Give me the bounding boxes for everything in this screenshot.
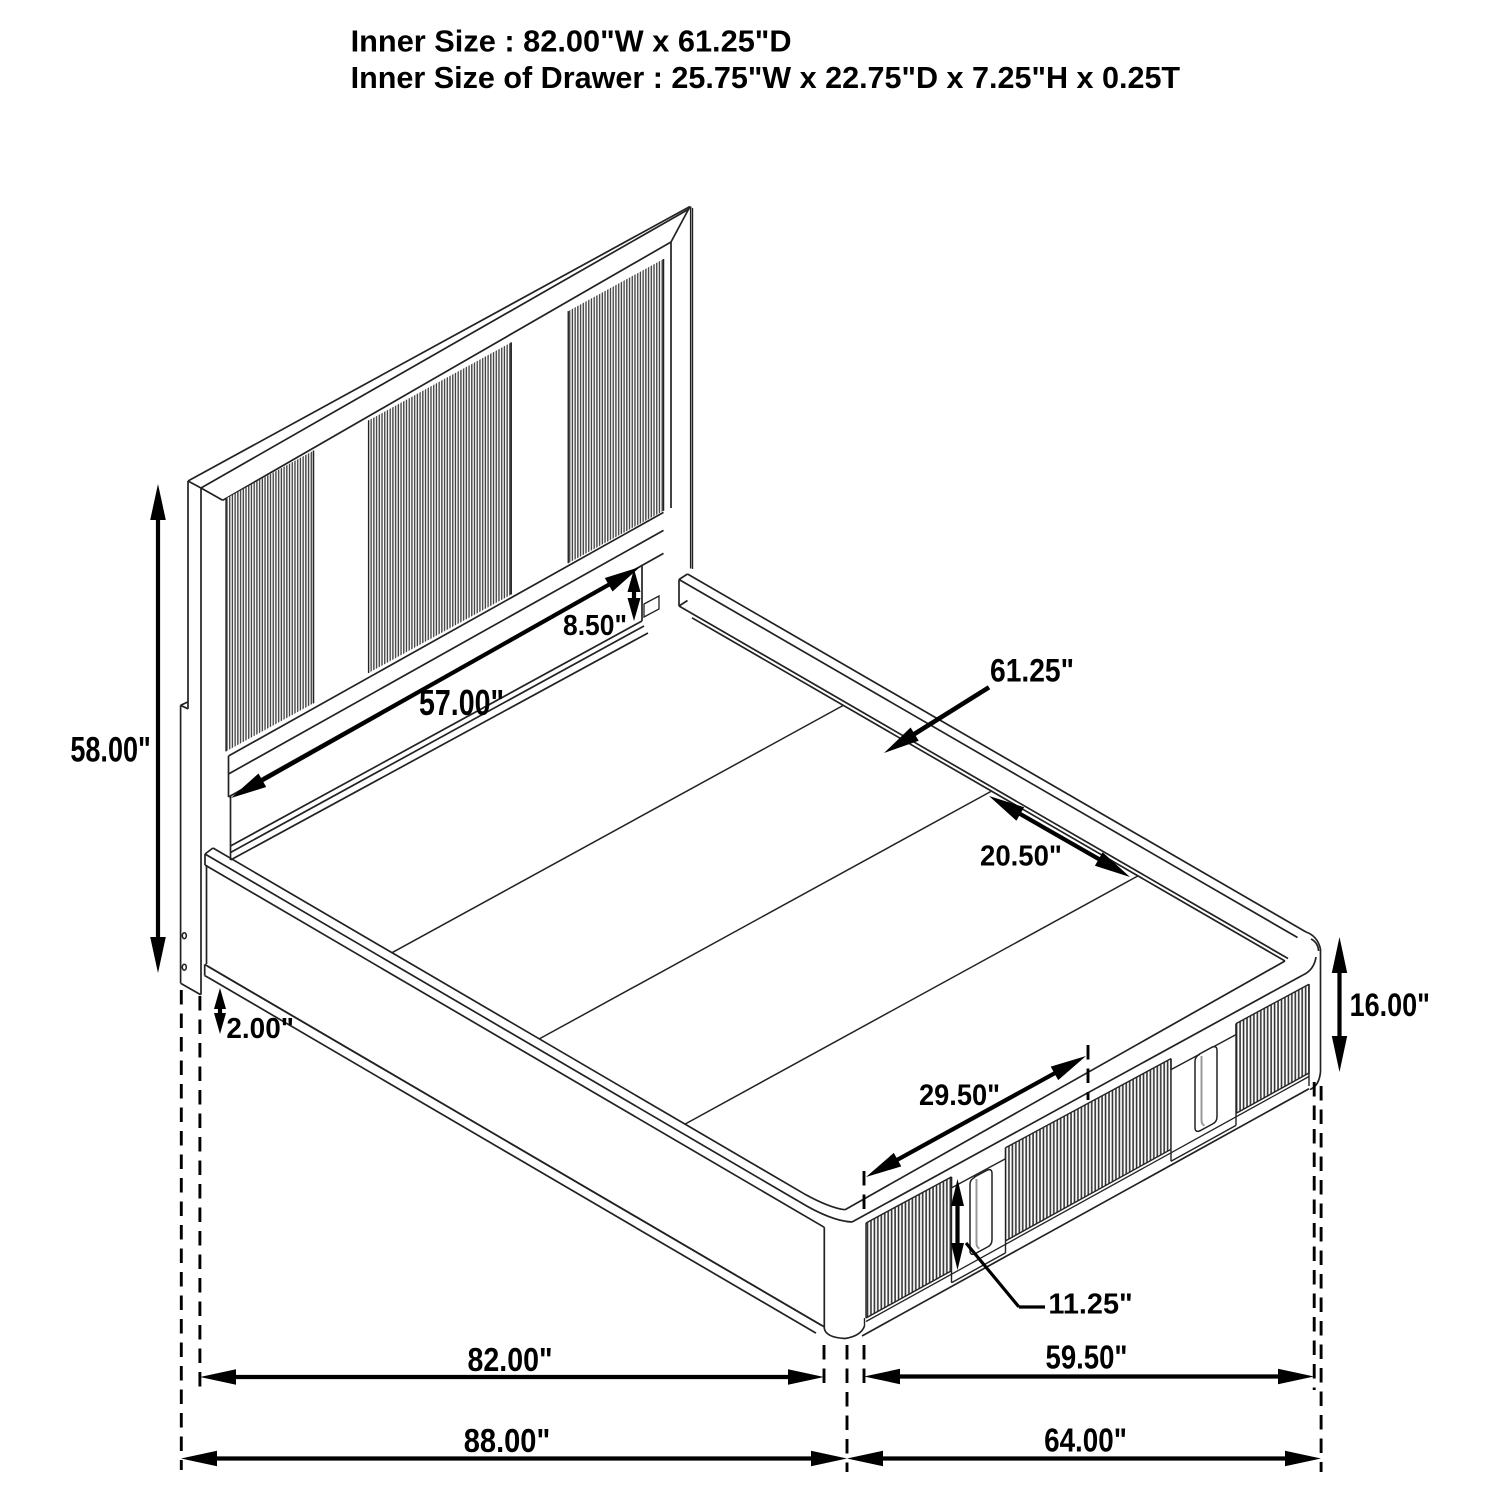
svg-text:20.50": 20.50" (980, 840, 1062, 872)
svg-text:Inner Size : 82.00"W x 61.25"D: Inner Size : 82.00"W x 61.25"D (351, 25, 792, 58)
svg-text:11.25": 11.25" (1048, 1289, 1132, 1321)
svg-text:64.00": 64.00" (1044, 1421, 1127, 1458)
svg-text:16.00": 16.00" (1350, 987, 1430, 1023)
svg-text:29.50": 29.50" (919, 1079, 1000, 1112)
svg-text:57.00": 57.00" (419, 682, 504, 723)
svg-text:2.00": 2.00" (226, 1013, 294, 1045)
svg-text:82.00": 82.00" (468, 1341, 553, 1378)
svg-text:59.50": 59.50" (1046, 1338, 1128, 1375)
svg-text:58.00": 58.00" (70, 731, 151, 770)
svg-text:88.00": 88.00" (464, 1422, 551, 1459)
svg-text:61.25": 61.25" (990, 652, 1074, 688)
svg-text:8.50": 8.50" (563, 610, 627, 642)
svg-text:Inner Size of Drawer : 25.75"W: Inner Size of Drawer : 25.75"W x 22.75"D… (351, 62, 1181, 95)
